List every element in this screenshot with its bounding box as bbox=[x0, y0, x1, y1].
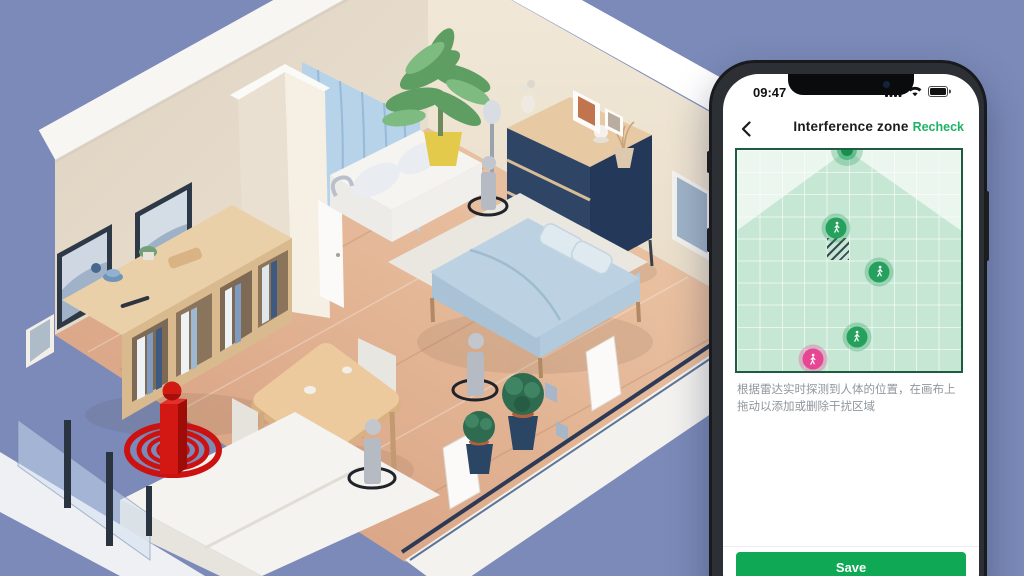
person-2-marker[interactable] bbox=[869, 261, 890, 282]
nav-bar: Interference zone Recheck bbox=[723, 116, 979, 142]
walking-person-icon bbox=[806, 352, 820, 366]
battery-icon bbox=[928, 86, 951, 97]
save-button[interactable]: Save bbox=[736, 552, 966, 576]
walking-person-icon bbox=[829, 221, 843, 235]
door bbox=[318, 200, 344, 308]
camera-icon bbox=[883, 81, 890, 88]
picture-frame-small bbox=[26, 314, 54, 368]
volume-button bbox=[707, 228, 711, 252]
phone-mockup: 09:47 bbox=[709, 60, 987, 576]
divider bbox=[723, 546, 979, 547]
power-button bbox=[985, 191, 989, 261]
mute-switch bbox=[707, 151, 711, 173]
recheck-button[interactable]: Recheck bbox=[913, 120, 964, 134]
interference-zone-canvas[interactable] bbox=[735, 148, 963, 373]
person-3-marker[interactable] bbox=[846, 326, 867, 347]
phone-screen: 09:47 bbox=[723, 74, 979, 576]
walking-person-icon bbox=[850, 330, 864, 344]
radar-sensor-icon bbox=[831, 148, 863, 166]
person-4-marker[interactable] bbox=[802, 349, 823, 370]
hint-text: 根据雷达实时探测到人体的位置，在画布上拖动以添加或删除干扰区域 bbox=[737, 382, 965, 416]
screenshot-stage: 09:47 bbox=[0, 0, 1024, 576]
interference-cell[interactable] bbox=[827, 238, 849, 260]
notch bbox=[788, 74, 914, 95]
walking-person-icon bbox=[872, 265, 886, 279]
person-1-marker[interactable] bbox=[826, 217, 847, 238]
status-time: 09:47 bbox=[753, 85, 786, 100]
